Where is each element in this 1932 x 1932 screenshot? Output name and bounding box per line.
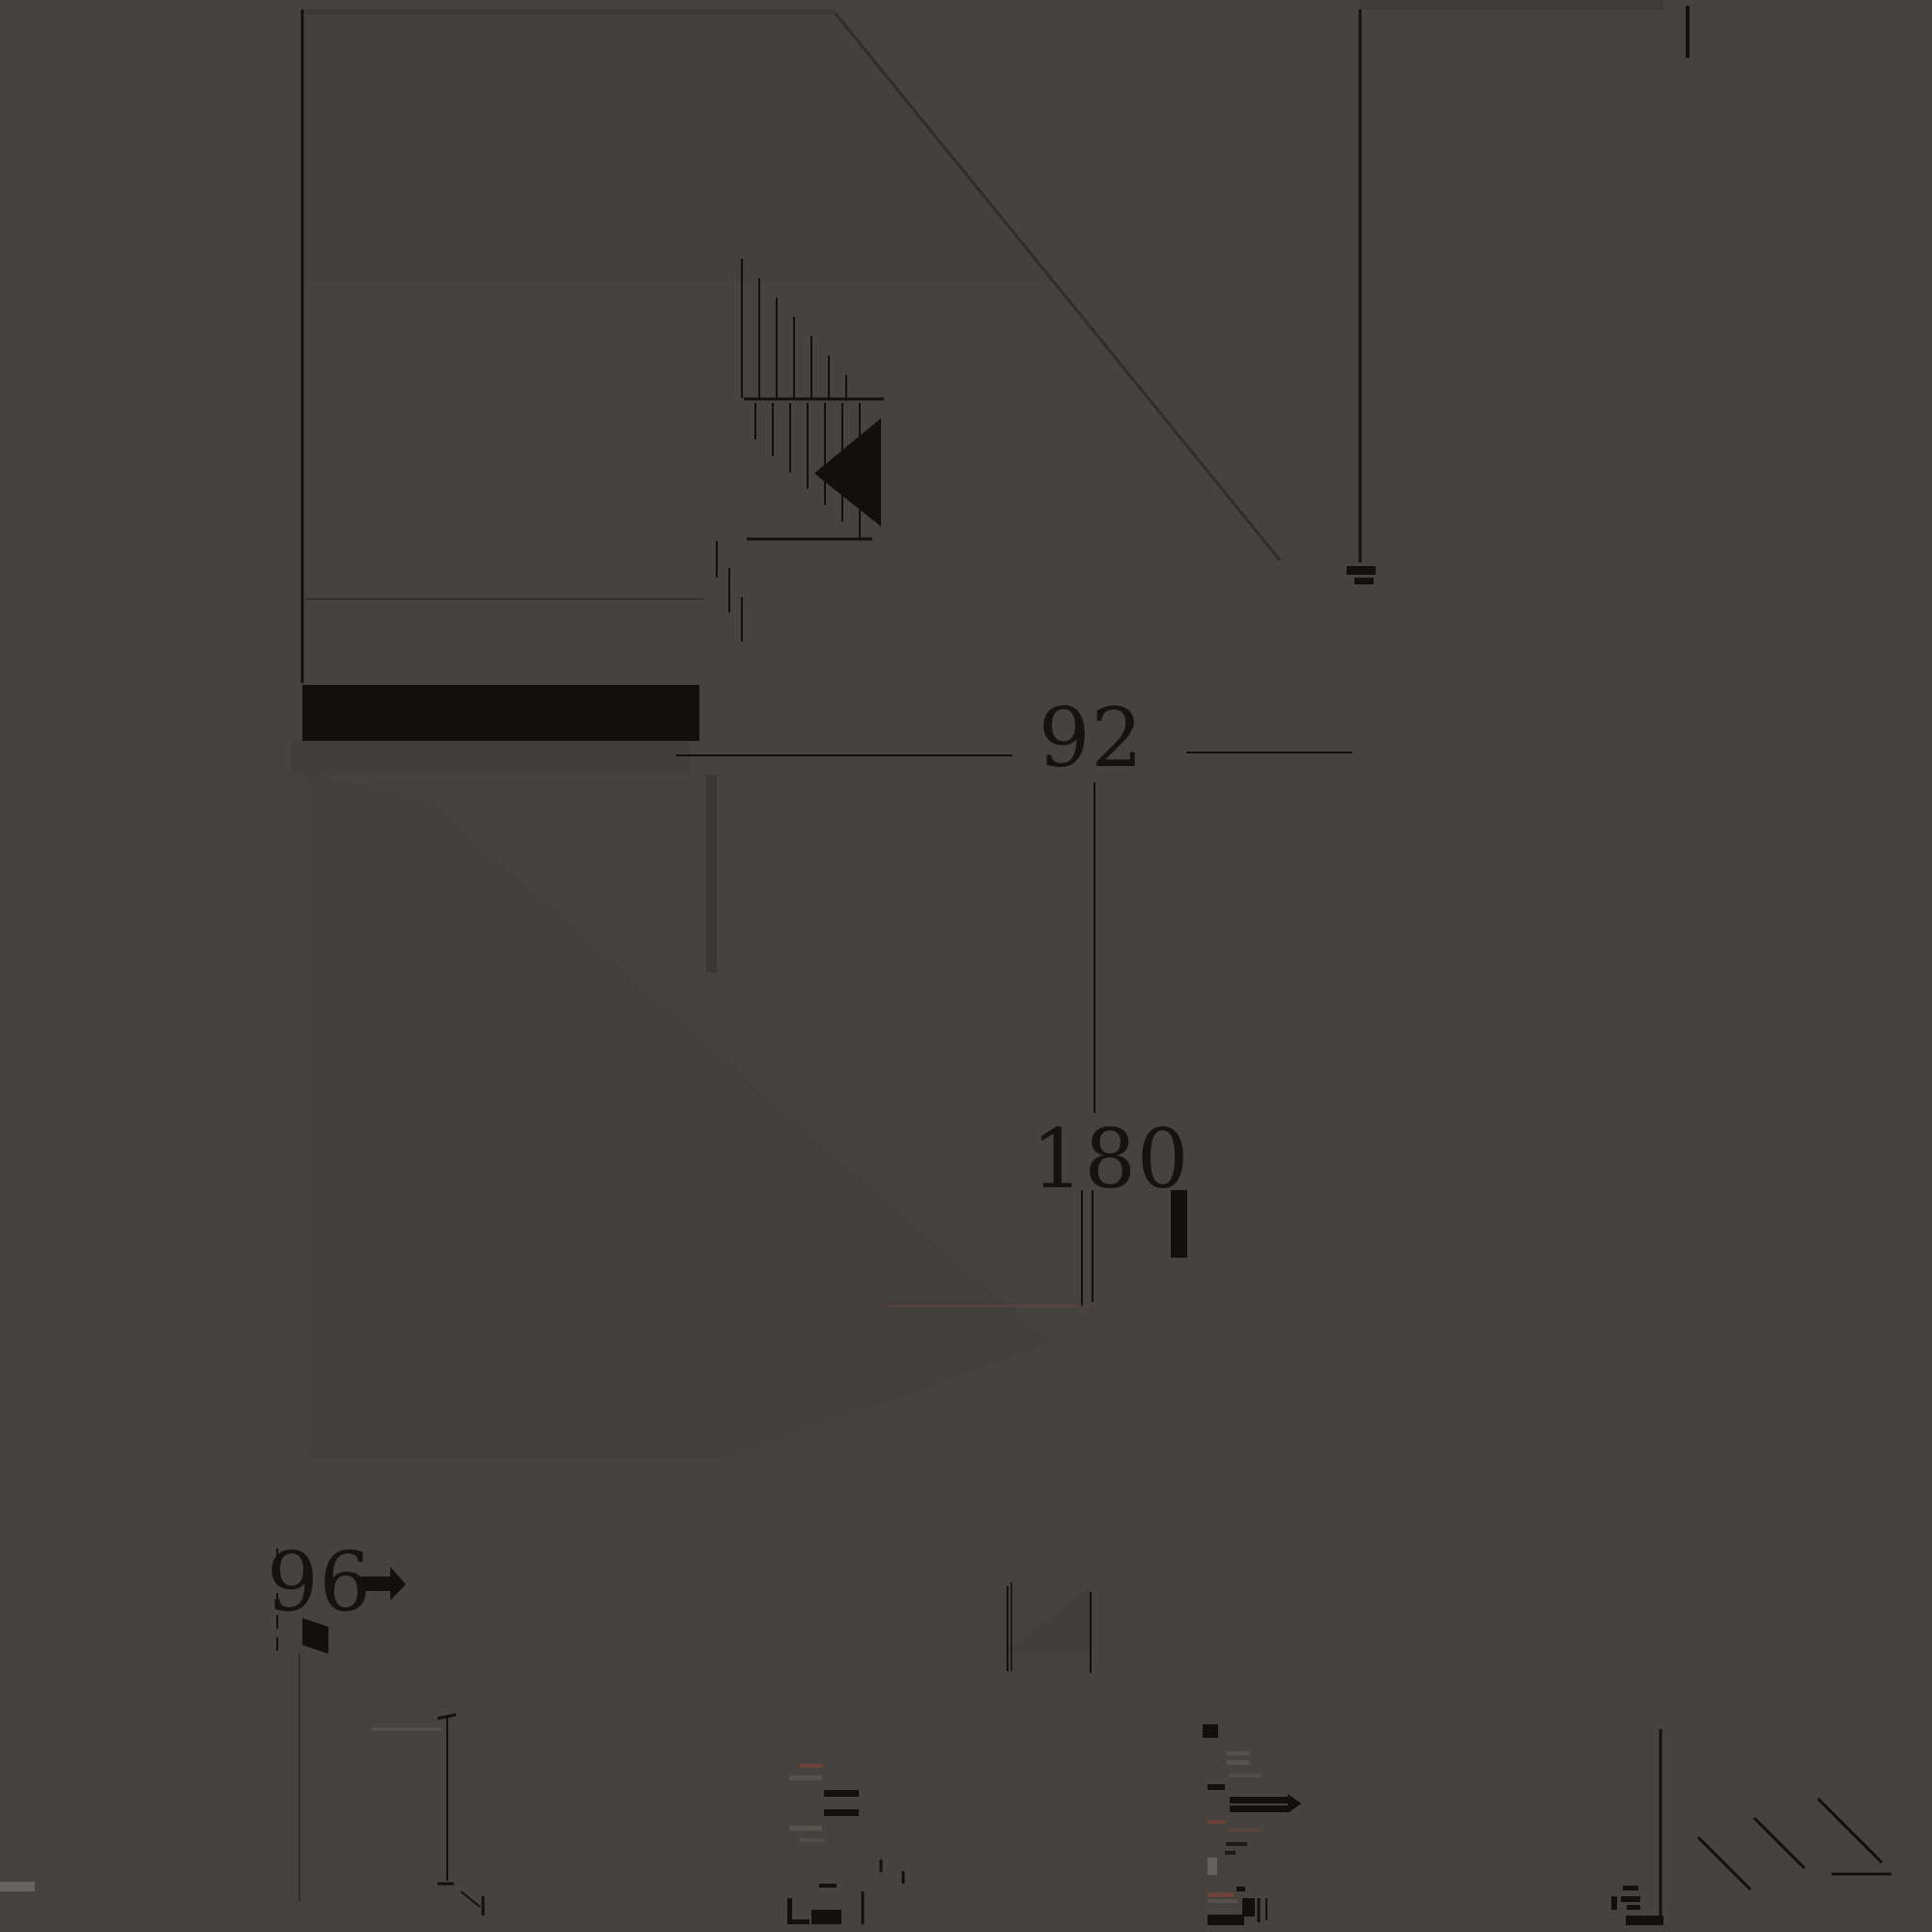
dimension-label-96: 96 bbox=[267, 1542, 372, 1623]
dimension-label-92: 92 bbox=[1038, 697, 1144, 779]
dimension-diagram: 92 180 96 bbox=[0, 0, 1932, 1932]
dimension-label-180: 180 bbox=[1032, 1119, 1189, 1200]
diagram-line-art bbox=[0, 0, 1932, 1932]
